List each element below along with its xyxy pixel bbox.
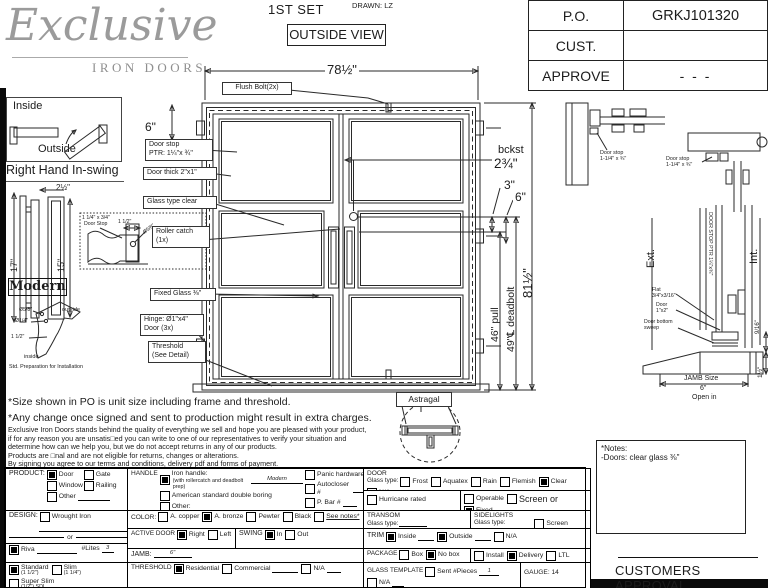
ext-label: Ext.: [645, 249, 657, 268]
option-sent-pieces[interactable]: Sent #Pieces1: [425, 567, 499, 577]
glass-type-label: Glass type clear: [143, 196, 217, 209]
dim-916: 9/16": [755, 320, 761, 334]
option-riva[interactable]: Riva: [9, 545, 77, 555]
package-label: PACKAGE: [367, 550, 397, 557]
option-right[interactable]: Right: [177, 530, 205, 540]
option-panic-hardware[interactable]: Panic hardware: [305, 470, 367, 480]
product-label: PRODUCT:: [9, 470, 45, 477]
checkbox[interactable]: [305, 484, 315, 494]
write-in-line[interactable]: [37, 546, 77, 554]
color-options: A. copperA. bronzePewterBlackSee notes*: [158, 512, 367, 523]
option-a-bronze[interactable]: A. bronze: [202, 512, 243, 522]
checkbox[interactable]: [174, 564, 184, 574]
option-see-notes-[interactable]: See notes*: [314, 512, 359, 522]
checkbox[interactable]: [367, 495, 377, 505]
write-in-line[interactable]: [475, 533, 491, 541]
door-stop-label: Door stop PTR: 1¼"x ¾": [145, 139, 213, 161]
option-black[interactable]: Black: [283, 512, 312, 522]
glass-template-section: GLASS TEMPLATE Sent #Pieces1N/A: [363, 562, 528, 588]
checkbox[interactable]: [177, 530, 187, 540]
option-a-copper[interactable]: A. copper: [158, 512, 199, 522]
customers-approval-label: CUSTOMERS APPROVAL: [615, 563, 768, 588]
hurricane-options: Hurricane rated: [367, 495, 429, 502]
option-n-a[interactable]: N/A: [301, 564, 340, 574]
option-aquatex[interactable]: Aquatex: [431, 477, 468, 487]
option-clear[interactable]: Clear: [539, 477, 567, 487]
checkbox[interactable]: [246, 512, 256, 522]
checkbox[interactable]: [305, 498, 315, 508]
handle-width-dim: 2½": [56, 183, 70, 192]
write-in-line[interactable]: [78, 493, 110, 501]
checkbox[interactable]: [305, 470, 315, 480]
transom-sub: Glass type:: [367, 520, 399, 527]
checkbox[interactable]: [84, 481, 94, 491]
jamb-value[interactable]: 6": [154, 550, 192, 558]
write-in-line[interactable]: 1: [479, 568, 499, 576]
drawing-sheet: Exclusive IRON DOORS 1ST SET DRAWN: LZ O…: [0, 0, 768, 588]
checkbox[interactable]: [47, 481, 57, 491]
sidelights-sub: Glass type:: [474, 519, 506, 526]
prep-inside-label: inside: [24, 354, 39, 360]
handle-label: HANDLE: [131, 470, 158, 477]
product-options: DoorGateWindowRailingOther: [47, 470, 131, 503]
po-label: P.O.: [529, 1, 624, 31]
flat-bar-label: Flat 3/4"x3/16": [652, 288, 676, 300]
checkbox[interactable]: [9, 545, 19, 555]
design-writein-line[interactable]: [39, 525, 127, 532]
thickness-options: Standard(1 1/2")Slim(1 1/4")Super Slim(1…: [9, 564, 84, 585]
option-no-box[interactable]: No box: [426, 550, 460, 560]
po-value[interactable]: GRKJ101320: [624, 1, 768, 31]
sidelights-options: Screen: [534, 519, 571, 526]
door-thick-label: Door thick 2"x1": [143, 167, 217, 180]
option-operable[interactable]: Operable: [464, 494, 504, 504]
checkbox[interactable]: [47, 470, 57, 480]
color-label: COLOR:: [131, 514, 156, 521]
option-american-standard-double-boring[interactable]: American standard double boring: [160, 491, 303, 501]
jamb-size-dim: 6": [700, 385, 706, 392]
threshold-form-label: THRESHOLD: [131, 564, 172, 571]
active-door-options: RightLeft: [177, 530, 234, 537]
checkbox[interactable]: [546, 551, 556, 561]
prep-dim-3: 1 1/2": [11, 335, 24, 341]
option-other[interactable]: Other: [47, 492, 110, 502]
fixed-glass-label: Fixed Glass ⅜": [150, 288, 216, 301]
riva-option: Riva: [9, 545, 80, 552]
option-outside[interactable]: Outside: [437, 532, 490, 542]
option-rain[interactable]: Rain: [471, 477, 497, 487]
option-hurricane-rated[interactable]: Hurricane rated: [367, 495, 426, 505]
option-n-a[interactable]: N/A: [367, 578, 404, 588]
active-door-label: ACTIVE DOOR: [131, 530, 175, 537]
door-width-dim: 78½": [325, 62, 359, 77]
design-label: DESIGN:: [9, 512, 38, 519]
option-wrought-iron[interactable]: Wrought Iron: [40, 512, 91, 522]
checkbox[interactable]: [431, 477, 441, 487]
option-n-a[interactable]: N/A: [494, 532, 517, 542]
glass-template-label: GLASS TEMPLATE: [367, 567, 423, 574]
checkbox[interactable]: [474, 551, 484, 561]
option-residential[interactable]: Residential: [174, 564, 220, 574]
prep-outside-label: outside: [62, 307, 80, 313]
trim-label: TRIM: [367, 532, 384, 539]
option-out[interactable]: Out: [285, 530, 308, 540]
signature-line[interactable]: [618, 557, 758, 558]
cust-value[interactable]: [624, 31, 768, 61]
design-or-label: or: [67, 534, 73, 541]
checkbox[interactable]: [507, 494, 517, 504]
approve-row: APPROVE - - -: [529, 61, 768, 91]
option-door[interactable]: Door: [47, 470, 81, 480]
po-table: P.O. GRKJ101320 CUST. APPROVE - - -: [528, 0, 768, 91]
thickness-section: Standard(1 1/2")Slim(1 1/4")Super Slim(1…: [5, 562, 135, 588]
checkbox[interactable]: [426, 550, 436, 560]
stop-detail-label: Door Stop: [84, 222, 107, 228]
design-options: Wrought Iron: [40, 512, 131, 523]
checkbox[interactable]: [283, 512, 293, 522]
option-frost[interactable]: Frost: [400, 477, 427, 487]
option-iron-handle-[interactable]: Iron handle:(with rollercatch and deadbo…: [160, 470, 303, 490]
dim-6in: 6": [513, 190, 528, 204]
gauge-cell: GAUGE: 14: [520, 562, 591, 588]
threshold-label: Threshold (See Detail): [148, 341, 206, 363]
checkbox[interactable]: [539, 477, 549, 487]
door-size-label: Door 1"x2": [656, 303, 668, 315]
option-autocloser-[interactable]: Autocloser #: [305, 481, 367, 497]
checkbox[interactable]: [399, 550, 409, 560]
checkbox[interactable]: [222, 564, 232, 574]
transom-label: TRANSOM: [367, 512, 474, 519]
astragal-label: Astragal: [396, 392, 452, 407]
lites-label: #Lites: [82, 545, 100, 553]
handle-options-left: Iron handle:(with rollercatch and deadbo…: [160, 470, 303, 513]
option-inside[interactable]: Inside: [386, 532, 434, 542]
prep-dim-2: Ø1/4": [15, 319, 28, 325]
logo-exclusive: Exclusive: [6, 0, 196, 58]
option-gate[interactable]: Gate: [84, 470, 114, 480]
drawn-by-label: DRAWN: LZ: [352, 1, 393, 10]
write-in-line[interactable]: Modern: [251, 476, 303, 484]
checkbox[interactable]: [265, 530, 275, 540]
handle-h2-dim: 15": [56, 259, 66, 272]
checkbox[interactable]: [437, 532, 447, 542]
checkbox[interactable]: [285, 530, 295, 540]
design-section: DESIGN: Wrought Iron or: [5, 510, 135, 547]
top-rail-dim: 6": [143, 120, 158, 134]
dim-112: 1½": [757, 367, 764, 378]
door-sweep-label: Door bottom sweep: [644, 320, 673, 332]
write-in-line[interactable]: [392, 579, 404, 587]
checkbox[interactable]: [160, 475, 170, 485]
checkbox[interactable]: [507, 551, 517, 561]
option-left[interactable]: Left: [208, 530, 231, 540]
door-glass-sub: Glass type:: [367, 477, 399, 484]
jamb-details-drawing: [555, 90, 768, 212]
option-box[interactable]: Box: [399, 550, 423, 560]
checkbox[interactable]: [386, 532, 396, 542]
option-install[interactable]: Install: [474, 551, 504, 561]
threshold-section: THRESHOLD ResidentialCommercialN/A: [127, 562, 371, 588]
swing-diagram: [6, 97, 120, 160]
backset-dim: 2¾": [492, 156, 520, 171]
checkbox[interactable]: [464, 494, 474, 504]
write-in-line[interactable]: [343, 499, 357, 507]
option-in[interactable]: In: [265, 530, 283, 540]
checkbox[interactable]: [301, 564, 311, 574]
flush-bolt-label: Flush Bolt(2x): [222, 82, 292, 95]
door-glass-label: DOOR: [367, 470, 587, 477]
disclaimer-line1: *Size shown in PO is unit size including…: [8, 396, 386, 408]
swing-options: InOut: [265, 530, 312, 537]
checkbox[interactable]: [9, 565, 19, 575]
option-flemish[interactable]: Flemish: [500, 477, 536, 487]
product-section: PRODUCT: DoorGateWindowRailingOther: [5, 468, 135, 514]
write-in-line[interactable]: [272, 565, 298, 573]
option-super-slim[interactable]: Super Slim(1/2") SDL: [9, 578, 54, 588]
pull-height-dim: 46" pull: [489, 307, 501, 342]
option-screen-or[interactable]: Screen or: [507, 494, 558, 505]
trim-options: InsideOutsideN/A: [386, 532, 520, 539]
cust-row: CUST.: [529, 31, 768, 61]
option-window[interactable]: Window: [47, 481, 81, 491]
threshold-options: ResidentialCommercialN/A: [174, 564, 344, 571]
swing-label: SWING: [239, 530, 263, 537]
option-pewter[interactable]: Pewter: [246, 512, 279, 522]
int-label: Int.: [748, 249, 760, 264]
handle-options-right: Panic hardwareAutocloser #P. Bar #: [305, 470, 367, 509]
checkbox[interactable]: [314, 512, 324, 522]
package-options-b: InstallDeliveryLTL: [474, 551, 573, 558]
checkbox[interactable]: [158, 512, 168, 522]
checkbox[interactable]: [40, 512, 50, 522]
jamb-size-label: JAMB Size: [684, 375, 718, 382]
package-options-a: BoxNo box: [399, 550, 462, 557]
checkbox[interactable]: [400, 477, 410, 487]
po-row: P.O. GRKJ101320: [529, 1, 768, 31]
deadbolt-height-dim: 49"℄ deadbolt: [505, 287, 517, 352]
write-in-line[interactable]: [418, 533, 434, 541]
option-p-bar-[interactable]: P. Bar #: [305, 498, 367, 508]
handle-h1-dim: 17": [9, 259, 19, 272]
style-name-label: Modern: [8, 278, 67, 296]
open-in-label: Open in: [692, 394, 717, 401]
checkbox[interactable]: [425, 567, 435, 577]
lites-field[interactable]: #Lites 3: [82, 545, 114, 553]
checkbox[interactable]: [494, 532, 504, 542]
sidelights-label: SIDELIGHTS: [474, 512, 587, 519]
checkbox[interactable]: [47, 492, 57, 502]
door-height-dim: 81½": [520, 268, 535, 298]
option-commercial[interactable]: Commercial: [222, 564, 298, 574]
approve-value[interactable]: - - -: [624, 61, 768, 91]
jamb-doorstop-a-label: Door stop 1-1/4" x ¾": [600, 150, 626, 162]
checkbox[interactable]: [84, 470, 94, 480]
checkbox[interactable]: [160, 491, 170, 501]
checkbox[interactable]: [471, 477, 481, 487]
prep-dim-1: Ø5/8": [19, 308, 32, 314]
notes-line: -Doors: clear glass ⅜": [601, 453, 741, 462]
prep-caption: Std. Preparation for Installation: [9, 364, 83, 370]
outside-view-label: OUTSIDE VIEW: [287, 24, 386, 46]
transom-glass-line[interactable]: [399, 519, 427, 527]
checkbox[interactable]: [202, 512, 212, 522]
backset-label: bckst: [496, 144, 526, 156]
sill-doorstop-ptr-label: DOOR STOP PTR 1¼"x¾": [707, 212, 713, 275]
checkbox[interactable]: [52, 565, 62, 575]
write-in-line[interactable]: [327, 565, 341, 573]
handle-section: HANDLE Iron handle:(with rollercatch and…: [127, 468, 371, 514]
lites-value[interactable]: 3: [102, 545, 114, 553]
checkbox[interactable]: [367, 578, 377, 588]
checkbox[interactable]: [500, 477, 510, 487]
notes-title: *Notes:: [601, 444, 741, 453]
option-slim[interactable]: Slim(1 1/4"): [52, 564, 82, 577]
checkbox[interactable]: [9, 579, 19, 588]
notes-box[interactable]: *Notes: -Doors: clear glass ⅜": [596, 440, 746, 534]
checkbox[interactable]: [208, 530, 218, 540]
option-delivery[interactable]: Delivery: [507, 551, 544, 561]
jamb-doorstop-b-label: Door stop 1-1/4" x ¾": [666, 156, 692, 168]
design-or-divider: or: [9, 534, 131, 541]
option-ltl[interactable]: LTL: [546, 551, 569, 561]
option-railing[interactable]: Railing: [84, 481, 114, 491]
disclaimer-line2: *Any change once signed and sent to prod…: [8, 412, 386, 424]
hinge-label: Hinge: Ø1"x4" Door (3x): [140, 314, 204, 336]
set-label: 1ST SET: [268, 2, 324, 17]
roller-catch-label: Roller catch (1x): [152, 226, 210, 248]
jamb-form-label: JAMB:: [131, 551, 152, 558]
option-standard[interactable]: Standard(1 1/2"): [9, 564, 49, 577]
